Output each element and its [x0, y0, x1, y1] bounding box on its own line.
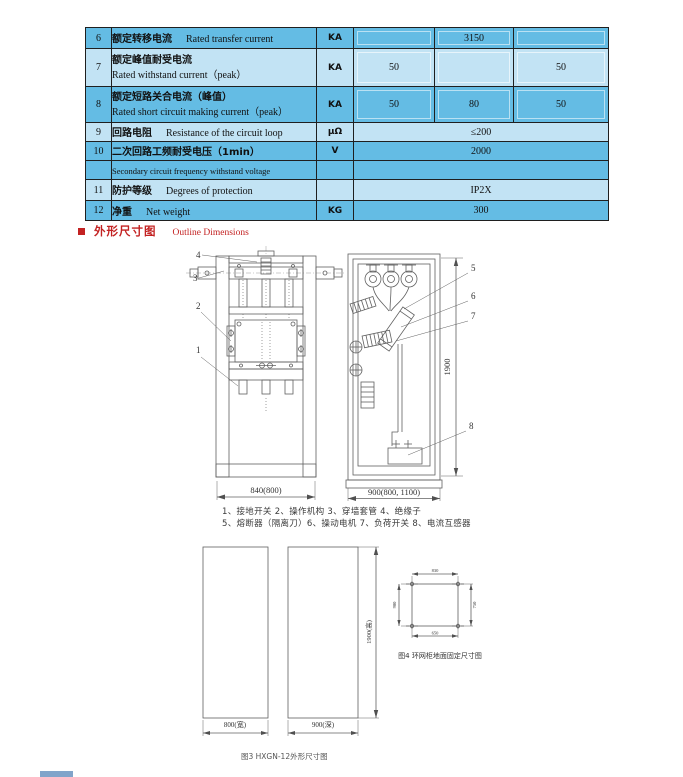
parameter-name: 二次回路工频耐受电压（1min） — [112, 142, 317, 161]
catalog-page: { "table": { "rows": [ {"no":"6","zh":"额… — [0, 0, 683, 777]
section-bullet-icon — [78, 228, 85, 235]
value-cell: 300 — [354, 201, 609, 221]
fig3-caption: 图3 HXGN-12外形尺寸图 — [241, 751, 328, 762]
row-number: 6 — [86, 28, 112, 49]
parameter-name-en: Rated short circuit making current（peak） — [112, 105, 316, 120]
side-width-dimension: 900(800, 1100) — [368, 487, 420, 497]
value-cell: IP2X — [354, 180, 609, 201]
anchor-bolt-icons — [406, 581, 464, 629]
unit-cell: KA — [317, 28, 354, 49]
unit-cell: KA — [317, 87, 354, 123]
fuse-tube — [378, 307, 415, 351]
parameter-name-zh: 回路电阻 — [112, 128, 152, 139]
callout-3: 3 — [193, 273, 198, 283]
value-cell: 80 — [435, 87, 514, 123]
cabinet-depth-outline — [288, 547, 358, 718]
row-number — [86, 161, 112, 180]
parameter-name: 额定峰值耐受电流 Rated withstand current（peak） — [112, 49, 317, 87]
parameter-name-zh: 防护等级 — [112, 186, 152, 197]
parameter-name-en: Rated withstand current（peak） — [112, 68, 316, 83]
fixing-right-dimension: 750 — [472, 601, 477, 609]
spec-table: 6 额定转移电流Rated transfer current KA 3150 7… — [85, 27, 609, 221]
value-cell — [435, 49, 514, 87]
value-cell: 50 — [514, 87, 609, 123]
fixing-bottom-dimension: 650 — [432, 631, 440, 636]
outline-width-dimension: 800(宽) — [224, 720, 247, 729]
row-number: 10 — [86, 142, 112, 161]
table-row: 9 回路电阻Resistance of the circuit loop μΩ … — [86, 123, 609, 142]
row-number: 11 — [86, 180, 112, 201]
parameter-name-zh: 额定转移电流 — [112, 34, 172, 45]
table-row: 8 额定短路关合电流（峰值） Rated short circuit makin… — [86, 87, 609, 123]
callout-2: 2 — [196, 301, 201, 311]
current-transformer-box — [388, 448, 422, 464]
section-header: 外形尺寸图Outline Dimensions — [78, 222, 249, 240]
side-view-drawing: 1900 5 6 7 8 900(800, 1100) — [344, 246, 482, 506]
callout-7: 7 — [471, 311, 476, 321]
table-row: 7 额定峰值耐受电流 Rated withstand current（peak）… — [86, 49, 609, 87]
parameter-name: 额定短路关合电流（峰值） Rated short circuit making … — [112, 87, 317, 123]
value-cell: 3150 — [435, 28, 514, 49]
value-cell: 2000 — [354, 142, 609, 161]
row-number: 9 — [86, 123, 112, 142]
unit-cell — [317, 180, 354, 201]
parameter-name: 回路电阻Resistance of the circuit loop — [112, 123, 317, 142]
parameter-name-en: Degrees of protection — [166, 186, 253, 197]
fixing-top-dimension: 830 — [432, 568, 440, 573]
parameter-name-zh: 净重 — [112, 207, 132, 218]
value-cell: 50 — [354, 87, 435, 123]
callout-6: 6 — [471, 291, 476, 301]
parameter-name: 额定转移电流Rated transfer current — [112, 28, 317, 49]
unit-cell: KA — [317, 49, 354, 87]
table-row: 11 防护等级Degrees of protection IP2X — [86, 180, 609, 201]
page-corner-decoration — [40, 771, 73, 777]
unit-cell: V — [317, 142, 354, 161]
table-row: 12 净重Net weight KG 300 — [86, 201, 609, 221]
value-cell: 50 — [354, 49, 435, 87]
parameter-name-zh: 二次回路工频耐受电压（1min） — [112, 147, 260, 158]
table-row: 10 二次回路工频耐受电压（1min） V 2000 — [86, 142, 609, 161]
callout-1: 1 — [196, 345, 201, 355]
fixing-left-dimension: 900 — [392, 601, 397, 609]
outline-depth-dimension: 900(深) — [312, 720, 335, 729]
parts-legend: 1、接地开关 2、操作机构 3、穿墙套管 4、绝缘子 5、熔断器（隔离刀）6、操… — [222, 507, 471, 530]
outline-height-dimension: 1900(高) — [364, 620, 373, 644]
legend-line-2: 5、熔断器（隔离刀）6、操动电机 7、负荷开关 8、电流互感器 — [222, 519, 471, 531]
unit-cell: KG — [317, 201, 354, 221]
unit-cell — [317, 161, 354, 180]
outline-drawings: 800(宽) 900(深) 1900(高) — [194, 540, 386, 745]
callout-5: 5 — [471, 263, 476, 273]
table-row: 6 额定转移电流Rated transfer current KA 3150 — [86, 28, 609, 49]
side-height-dimension: 1900 — [442, 359, 452, 376]
row-number: 8 — [86, 87, 112, 123]
fig4-caption: 图4 环网柜地面固定尺寸图 — [398, 651, 482, 660]
table-row: Secondary circuit frequency withstand vo… — [86, 161, 609, 180]
front-width-dimension: 840(800) — [250, 485, 281, 495]
row-number: 12 — [86, 201, 112, 221]
parameter-name-zh: 额定峰值耐受电流 — [112, 53, 316, 68]
value-cell: ≤200 — [354, 123, 609, 142]
callout-4: 4 — [196, 250, 201, 260]
bushing-icons — [365, 265, 417, 287]
callout-8: 8 — [469, 421, 474, 431]
legend-line-1: 1、接地开关 2、操作机构 3、穿墙套管 4、绝缘子 — [222, 507, 471, 519]
parameter-name: Secondary circuit frequency withstand vo… — [112, 161, 317, 180]
section-title-en: Outline Dimensions — [173, 228, 249, 238]
row-number: 7 — [86, 49, 112, 87]
parameter-name: 防护等级Degrees of protection — [112, 180, 317, 201]
front-view-drawing: 840(800) 4 3 2 1 — [186, 246, 346, 506]
parameter-name-en: Net weight — [146, 207, 190, 218]
value-cell — [354, 161, 609, 180]
fixing-dimension-drawing: 830 900 750 650 图4 环网柜地面固定尺寸图 — [388, 566, 504, 670]
value-cell — [514, 28, 609, 49]
value-cell — [354, 28, 435, 49]
parameter-name: 净重Net weight — [112, 201, 317, 221]
parameter-name-zh: 额定短路关合电流（峰值） — [112, 90, 316, 105]
cabinet-width-outline — [203, 547, 268, 718]
parameter-name-en: Resistance of the circuit loop — [166, 128, 283, 139]
section-title-zh: 外形尺寸图 — [94, 224, 157, 238]
unit-cell: μΩ — [317, 123, 354, 142]
parameter-name-en: Rated transfer current — [186, 34, 273, 45]
value-cell: 50 — [514, 49, 609, 87]
parameter-name-en: Secondary circuit frequency withstand vo… — [112, 166, 270, 176]
